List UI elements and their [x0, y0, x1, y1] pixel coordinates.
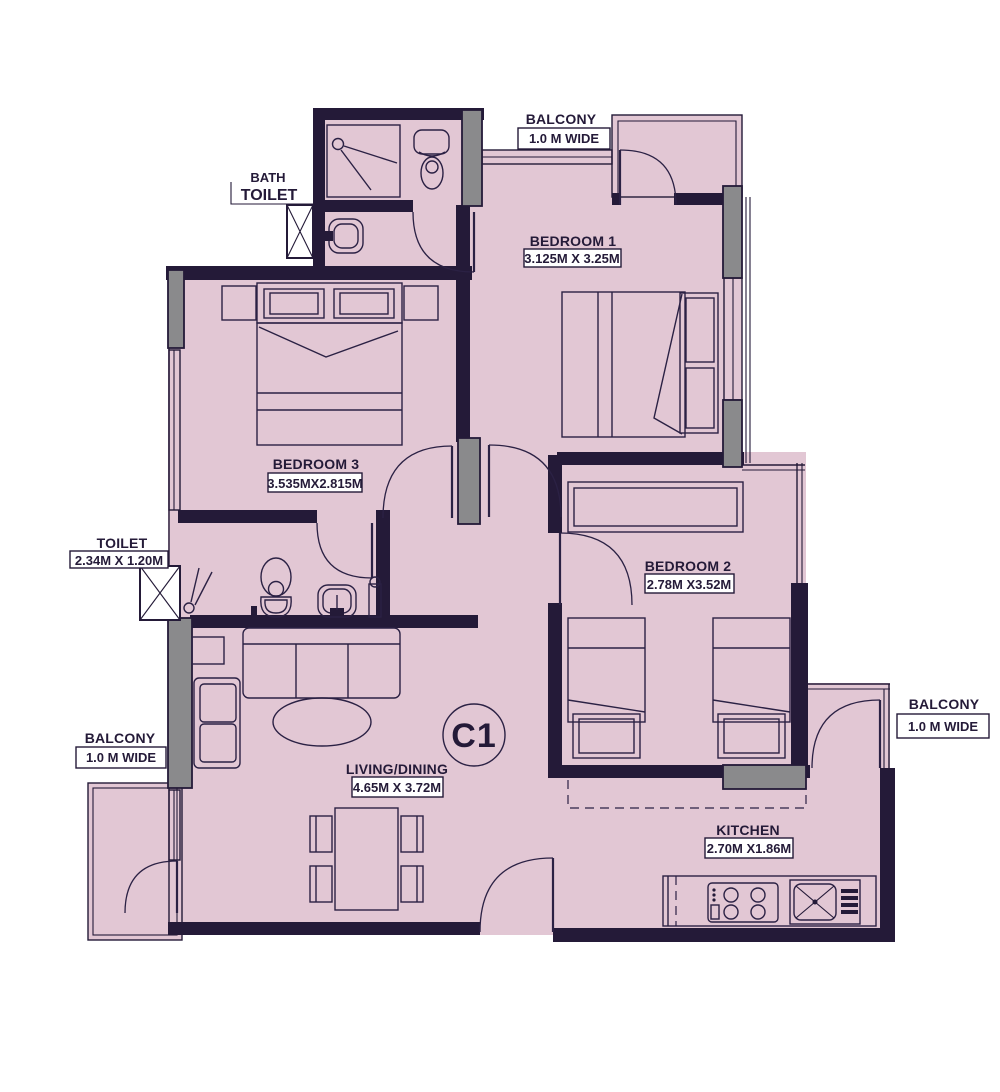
- window-block-bedroom3-left: [168, 270, 184, 348]
- bedroom3-name: BEDROOM 3: [273, 456, 360, 472]
- living-label: LIVING/DINING 4.65M X 3.72M: [346, 761, 448, 797]
- living-dims: 4.65M X 3.72M: [353, 780, 441, 795]
- balcony-top-name: BALCONY: [526, 111, 597, 127]
- balcony-right-label: BALCONY 1.0 M WIDE: [897, 696, 989, 738]
- kitchen-label: KITCHEN 2.70M X1.86M: [705, 822, 793, 858]
- wall-bedroom2-left-upper: [548, 455, 562, 533]
- window-block-bedroom1-lower: [723, 400, 742, 467]
- unit-label-text: C1: [451, 717, 496, 755]
- floor-areas: [88, 110, 895, 942]
- kitchen-dims: 2.70M X1.86M: [707, 841, 792, 856]
- wall-bedroom2-right: [791, 583, 808, 778]
- wall-living-bottom: [168, 922, 480, 935]
- wall-bath-bottom: [313, 200, 413, 212]
- wall-toilet-right: [376, 510, 390, 620]
- wall-bedroom1-left: [456, 205, 470, 442]
- balcony-left-name: BALCONY: [85, 730, 156, 746]
- wall-bath-top: [313, 108, 484, 120]
- living-name: LIVING/DINING: [346, 761, 448, 777]
- bath-toilet-text: TOILET: [241, 187, 298, 204]
- balcony-right-name: BALCONY: [909, 696, 980, 712]
- wall-balcony-top-a: [612, 193, 620, 205]
- wall-bedroom2-left-lower: [548, 603, 562, 778]
- wall-bedroom3-bottom: [178, 510, 317, 523]
- toilet-label: TOILET 2.34M X 1.20M: [70, 535, 168, 568]
- bedroom2-name: BEDROOM 2: [645, 558, 732, 574]
- balcony-top-label: BALCONY 1.0 M WIDE: [518, 111, 610, 149]
- bath-toilet-label: BATH TOILET: [231, 170, 313, 204]
- balcony-right-dims: 1.0 M WIDE: [908, 719, 978, 734]
- window-block-bedroom2-bottom: [723, 765, 806, 789]
- bedroom1-dims: 3.125M X 3.25M: [524, 251, 619, 266]
- kitchen-name: KITCHEN: [716, 822, 780, 838]
- bedroom3-dims: 3.535MX2.815M: [267, 476, 362, 491]
- column-hall: [458, 438, 480, 524]
- bedroom1-label: BEDROOM 1 3.125M X 3.25M: [524, 233, 621, 267]
- wall-bedroom1-bottom: [557, 452, 744, 465]
- window-block-bedroom1-upper: [723, 186, 742, 278]
- wall-bath-left: [313, 108, 325, 270]
- balcony-right-floor: [806, 683, 890, 775]
- floor-plan-drawing: BALCONY 1.0 M WIDE BATH TOILET BEDROOM 1…: [0, 0, 1000, 1092]
- wall-bedroom3-top: [166, 266, 472, 280]
- bath-label: BATH: [250, 170, 285, 185]
- balcony-left-label: BALCONY 1.0 M WIDE: [76, 730, 166, 768]
- toilet-dims: 2.34M X 1.20M: [75, 553, 163, 568]
- wall-kitchen-right: [880, 768, 895, 942]
- balcony-top-dims: 1.0 M WIDE: [529, 131, 599, 146]
- balcony-left-dims: 1.0 M WIDE: [86, 750, 156, 765]
- bedroom2-label: BEDROOM 2 2.78M X3.52M: [645, 558, 734, 593]
- toilet-name: TOILET: [97, 535, 148, 551]
- bedroom2-dims: 2.78M X3.52M: [647, 577, 732, 592]
- bedroom1-name: BEDROOM 1: [530, 233, 617, 249]
- column-bath-corner: [462, 110, 482, 206]
- floor-plan-page: BALCONY 1.0 M WIDE BATH TOILET BEDROOM 1…: [0, 0, 1000, 1092]
- bedroom3-label: BEDROOM 3 3.535MX2.815M: [267, 456, 362, 492]
- window-block-living-left: [168, 618, 192, 788]
- wall-kitchen-bottom: [553, 928, 895, 942]
